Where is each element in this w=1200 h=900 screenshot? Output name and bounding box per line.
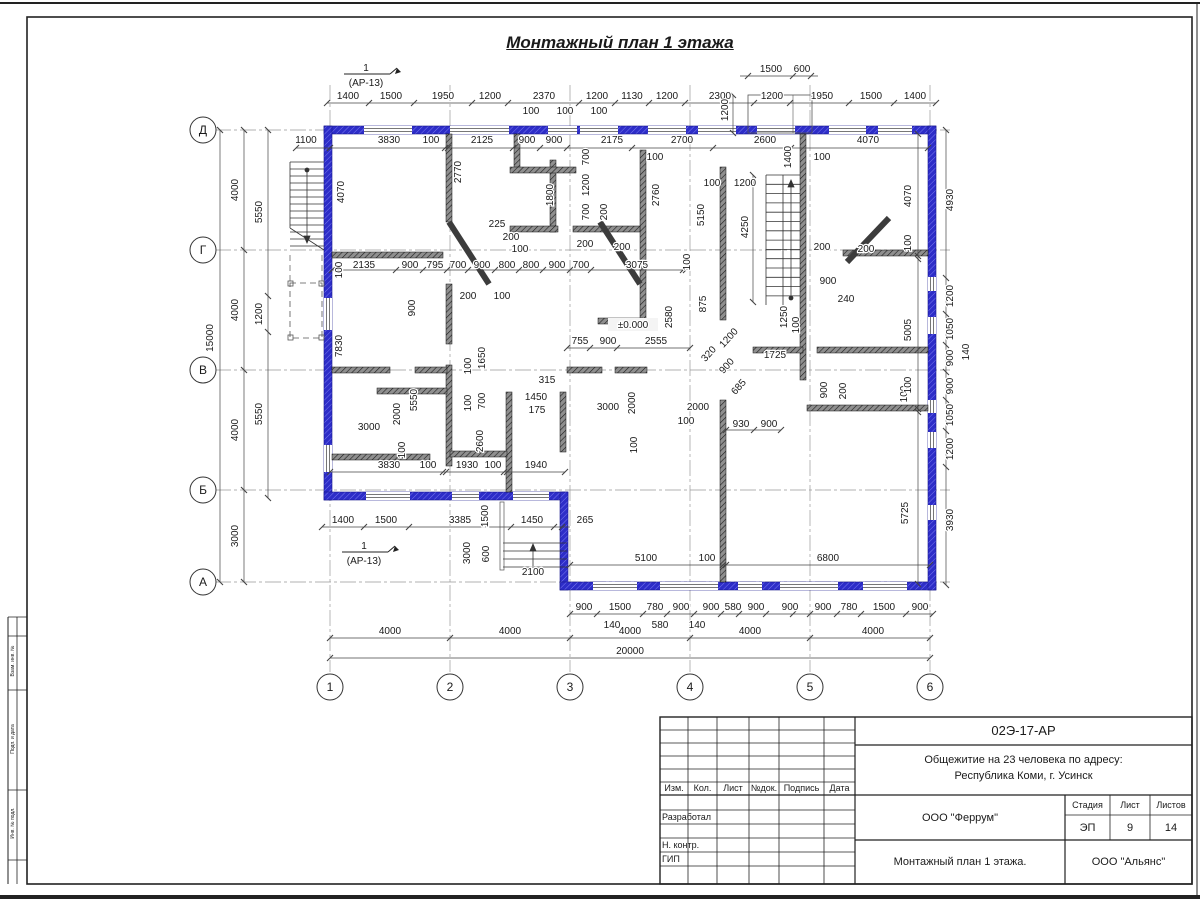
dim-label: 1130 (621, 91, 643, 102)
stamp-sheet-title: Монтажный план 1 этажа. (855, 850, 1065, 874)
dim-label: 200 (503, 232, 520, 243)
dim-label: 900 (576, 602, 593, 613)
dim-label: 2125 (471, 135, 494, 146)
dim-label: 1400 (337, 91, 360, 102)
dim-label: 200 (858, 244, 875, 255)
dim-label: 4000 (230, 178, 241, 201)
dim-label: 2000 (687, 402, 710, 413)
dim-label: 100 (678, 416, 695, 427)
dim-label: 1450 (521, 515, 544, 526)
dim-label: 320 (699, 344, 719, 364)
dim-label: 800 (499, 260, 516, 271)
dim-label: 4930 (945, 188, 956, 211)
dim-label: 100 (704, 178, 721, 189)
dim-label: 5150 (696, 203, 707, 226)
drawing-sheet: 123456ДГВБА 1400150019501200237012001130… (0, 0, 1200, 900)
dim-label: 20000 (616, 646, 644, 657)
dim-label: 900 (546, 135, 563, 146)
dim-label: 900 (748, 602, 765, 613)
dim-label: 100 (647, 152, 664, 163)
dim-label: 100 (591, 106, 608, 117)
dim-label: 700 (450, 260, 467, 271)
dim-label: 2760 (651, 183, 662, 206)
stamp-row-gip: ГИП (662, 852, 722, 866)
stamp-sheet-number: 9 (1110, 818, 1150, 838)
windows (324, 126, 936, 590)
dim-label: 2000 (627, 391, 638, 414)
dim-label: 100 (523, 106, 540, 117)
dim-label: 1200 (761, 91, 784, 102)
dim-label: 800 (523, 260, 540, 271)
dim-label: 200 (577, 239, 594, 250)
axis-bubble-label: 4 (687, 680, 694, 694)
dim-label: 900 (717, 356, 737, 376)
dim-label: 100 (903, 376, 914, 393)
dim-label: 100 (463, 394, 474, 411)
dim-label: 1650 (477, 346, 488, 369)
dim-label: 4070 (336, 180, 347, 203)
axis-bubble-label: 2 (447, 680, 454, 694)
stamp-org-design: ООО "Феррум" (855, 806, 1065, 830)
dim-label: 100 (699, 553, 716, 564)
side-label-vzam: Взам. инв. № (10, 626, 16, 696)
dim-label: 1200 (720, 98, 731, 121)
dim-label: 1500 (860, 91, 883, 102)
dim-label: 1200 (581, 173, 592, 196)
dim-label: 1500 (609, 602, 632, 613)
section-marker-ref: (АР-13) (347, 556, 381, 567)
dim-label: 2700 (671, 135, 694, 146)
dim-label: 100 (814, 152, 831, 163)
dim-label: 2555 (645, 336, 668, 347)
dim-label: 795 (427, 260, 444, 271)
dim-label: 900 (819, 381, 830, 398)
dim-label: 1400 (783, 145, 794, 168)
axis-bubble-label: В (199, 363, 207, 377)
dim-label: 100 (423, 135, 440, 146)
stamp-col-kol: Кол. (688, 782, 717, 795)
dim-label: 685 (729, 377, 749, 397)
dim-label: 900 (407, 299, 418, 316)
dim-label: 930 (733, 419, 750, 430)
dim-label: 900 (474, 260, 491, 271)
dim-label: 175 (529, 405, 546, 416)
dim-label: 2000 (392, 402, 403, 425)
dim-label: 15000 (205, 324, 216, 352)
dim-label: 5550 (254, 402, 265, 425)
dim-label: 200 (599, 203, 610, 220)
stamp-col-izm: Изм. (660, 782, 688, 795)
dim-label: 225 (489, 219, 506, 230)
drawing-title: Монтажный план 1 этажа (450, 32, 790, 54)
dim-label: 1200 (718, 326, 741, 350)
stamp-row-developed: Разработал (662, 810, 722, 824)
exterior-walls (324, 126, 936, 590)
dim-label: 4000 (379, 626, 402, 637)
stamp-col-sign: Подпись (779, 782, 824, 795)
section-marker-ref: (АР-13) (349, 78, 383, 89)
dim-label: 100 (334, 261, 345, 278)
dim-label: 900 (703, 602, 720, 613)
dim-label: 4070 (857, 135, 880, 146)
dim-label: 1500 (873, 602, 896, 613)
dim-label: 3930 (945, 508, 956, 531)
stamp-sheets-label: Листов (1150, 797, 1192, 813)
dim-label: 3830 (378, 460, 401, 471)
dim-label: 755 (572, 336, 589, 347)
axis-bubble-label: 3 (567, 680, 574, 694)
elevation-label: ±0.000 (618, 320, 649, 331)
section-marker-number: 1 (363, 63, 369, 74)
dim-label: 4000 (499, 626, 522, 637)
dim-label: 4000 (862, 626, 885, 637)
dim-label: 4000 (230, 418, 241, 441)
dim-label: 875 (698, 295, 709, 312)
dim-label: 780 (647, 602, 664, 613)
dim-label: 3385 (449, 515, 472, 526)
stamp-col-list: Лист (717, 782, 749, 795)
stamp-stage-value: ЭП (1065, 818, 1110, 838)
dim-label: 1200 (945, 437, 956, 460)
dim-label: 2580 (664, 305, 675, 328)
dim-label: 4250 (740, 215, 751, 238)
dim-label: 2600 (754, 135, 777, 146)
dim-label: 1200 (945, 284, 956, 307)
stamp-col-date: Дата (824, 782, 855, 795)
dim-label: 200 (460, 291, 477, 302)
dim-label: 1930 (456, 460, 479, 471)
interior-walls (332, 134, 928, 582)
dim-label: 2100 (522, 567, 545, 578)
stamp-org-contractor: ООО "Альянс" (1065, 850, 1192, 874)
stamp-sheet-label: Лист (1110, 797, 1150, 813)
dim-label: 900 (945, 349, 956, 366)
dim-label: 7830 (334, 334, 345, 357)
dim-label: 900 (519, 135, 536, 146)
dim-label: 1800 (545, 183, 556, 206)
dim-label: 1200 (734, 178, 757, 189)
dim-label: 3830 (378, 135, 401, 146)
dim-label: 100 (494, 291, 511, 302)
axis-bubble-label: А (199, 575, 207, 589)
dim-label: 100 (420, 460, 437, 471)
dim-label: 900 (761, 419, 778, 430)
dim-label: 900 (912, 602, 929, 613)
elevation-mark: ±0.000 (608, 318, 658, 331)
dim-label: 1200 (586, 91, 609, 102)
dim-label: 900 (815, 602, 832, 613)
stamp-sheets-total: 14 (1150, 818, 1192, 838)
dim-label: 1400 (332, 515, 355, 526)
stamp-stage-label: Стадия (1065, 797, 1110, 813)
stamp-col-doc: №док. (749, 782, 779, 795)
dim-label: 1500 (480, 504, 491, 527)
dim-label: 700 (581, 148, 592, 165)
axis-bubble-label: 6 (927, 680, 934, 694)
side-label-inv: Инв. № подл. (10, 788, 16, 858)
dim-label: 3000 (462, 541, 473, 564)
dim-label: 900 (782, 602, 799, 613)
stamp-doc-number: 02Э-17-АР (855, 719, 1192, 743)
dim-label: 140 (961, 343, 972, 360)
dim-label: 900 (673, 602, 690, 613)
dim-label: 100 (463, 357, 474, 374)
dim-label: 4000 (230, 298, 241, 321)
dim-label: 2370 (533, 91, 556, 102)
dim-label: 900 (402, 260, 419, 271)
section-marker-number: 1 (361, 541, 367, 552)
dim-label: 140 (689, 620, 706, 631)
dim-label: 580 (725, 602, 742, 613)
axis-bubble-label: Д (199, 123, 207, 137)
dim-label: 900 (820, 276, 837, 287)
dim-label: 4000 (619, 626, 642, 637)
dim-label: 6800 (817, 553, 840, 564)
dim-label: 100 (485, 460, 502, 471)
dim-label: 700 (477, 392, 488, 409)
dim-label: 200 (838, 382, 849, 399)
axis-bubble-label: Б (199, 483, 207, 497)
dim-label: 1200 (656, 91, 679, 102)
axis-bubble-label: Г (200, 243, 207, 257)
dim-label: 1950 (811, 91, 834, 102)
dim-label: 780 (841, 602, 858, 613)
dim-label: 200 (814, 242, 831, 253)
dim-label: 3000 (358, 422, 381, 433)
dim-label: 1250 (779, 305, 790, 328)
dimension-labels: 1400150019501200237012001130120023001200… (205, 64, 972, 657)
dim-label: 100 (512, 244, 529, 255)
dim-label: 100 (903, 234, 914, 251)
dim-label: 100 (397, 441, 408, 458)
dim-label: 600 (794, 64, 811, 75)
dim-label: 1500 (375, 515, 398, 526)
dim-label: 3000 (597, 402, 620, 413)
dim-label: 315 (539, 375, 556, 386)
dim-label: 1500 (760, 64, 783, 75)
side-label-podp: Подп. и дата (10, 704, 16, 774)
dim-label: 5550 (409, 388, 420, 411)
dim-label: 2135 (353, 260, 376, 271)
axis-bubble-label: 1 (327, 680, 334, 694)
dim-label: 100 (682, 253, 693, 270)
dim-label: 100 (557, 106, 574, 117)
dim-label: 4000 (739, 626, 762, 637)
dim-label: 100 (791, 316, 802, 333)
stamp-row-ncontrol: Н. контр. (662, 838, 722, 852)
stamp-project-line2: Республика Коми, г. Усинск (855, 768, 1192, 784)
dim-label: 1500 (380, 91, 403, 102)
dim-label: 3000 (230, 524, 241, 547)
dim-label: 265 (577, 515, 594, 526)
dim-label: 600 (481, 545, 492, 562)
dim-label: 1200 (254, 302, 265, 325)
dim-label: 1200 (479, 91, 502, 102)
dim-label: 580 (652, 620, 669, 631)
dim-label: 2175 (601, 135, 624, 146)
dim-label: 240 (838, 294, 855, 305)
dim-label: 1050 (945, 317, 956, 340)
dim-label: 5550 (254, 200, 265, 223)
dim-label: 3075 (626, 260, 649, 271)
dim-label: 5100 (635, 553, 658, 564)
dim-label: 1050 (945, 403, 956, 426)
dim-label: 900 (549, 260, 566, 271)
dim-label: 200 (614, 242, 631, 253)
dim-label: 5725 (900, 501, 911, 524)
axis-bubble-label: 5 (807, 680, 814, 694)
dim-label: 4070 (903, 184, 914, 207)
dim-label: 2600 (475, 429, 486, 452)
dim-label: 100 (629, 436, 640, 453)
dim-label: 5005 (903, 318, 914, 341)
dim-label: 2770 (453, 160, 464, 183)
dim-label: 1100 (295, 135, 317, 146)
dim-label: 1725 (764, 350, 787, 361)
dim-label: 1450 (525, 392, 548, 403)
dim-label: 900 (600, 336, 617, 347)
dim-label: 1950 (432, 91, 455, 102)
dim-label: 700 (573, 260, 590, 271)
dim-label: 700 (581, 203, 592, 220)
dim-label: 1400 (904, 91, 927, 102)
dim-label: 1940 (525, 460, 548, 471)
dim-label: 900 (945, 377, 956, 394)
stamp-project-line1: Общежитие на 23 человека по адресу: (855, 752, 1192, 768)
